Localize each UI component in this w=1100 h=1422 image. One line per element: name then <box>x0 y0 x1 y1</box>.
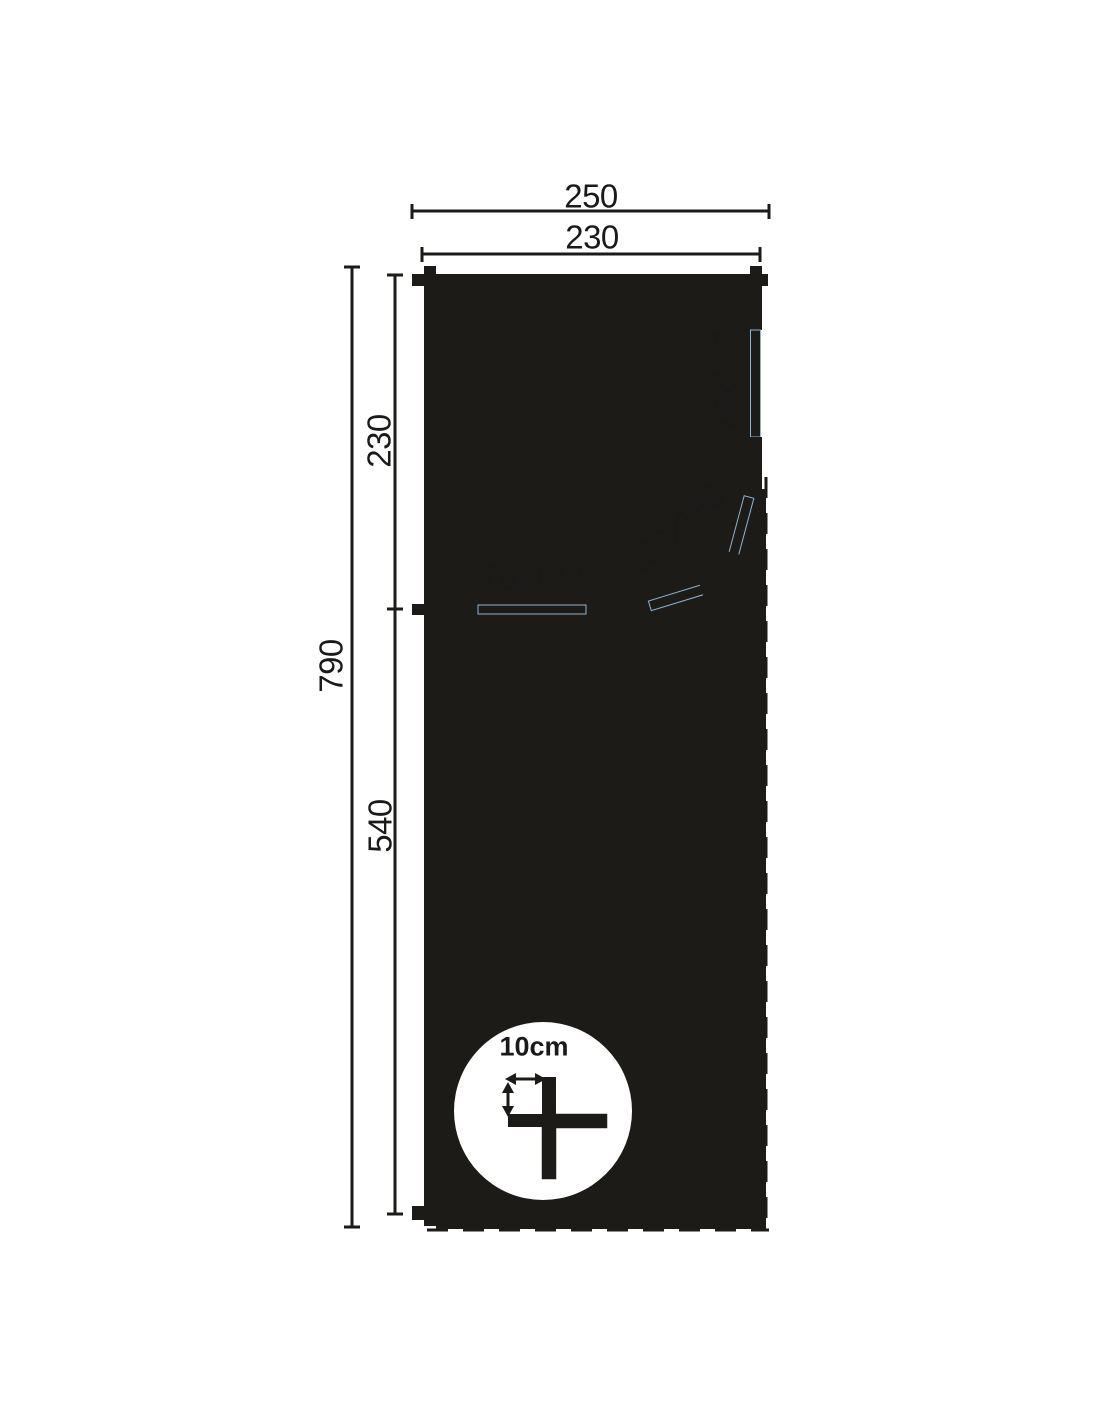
side-window-size-label: 76x122 <box>709 331 741 433</box>
right-wall-upper <box>750 266 762 330</box>
right-wall-lower <box>750 437 762 490</box>
terrace-post-middle <box>736 868 762 900</box>
front-window-size-label: 76x122 <box>481 562 583 594</box>
dim-label-overall-width: 250 <box>564 180 618 213</box>
left-wall <box>424 266 436 1226</box>
log-thickness-label: 10cm <box>499 1034 568 1061</box>
dim-label-cabin-depth: 230 <box>363 414 396 468</box>
back-wall <box>412 274 768 286</box>
front-wall-end-log <box>412 1206 461 1220</box>
log-horizontal-solid <box>508 1114 556 1127</box>
log-horizontal-outline <box>556 1115 606 1127</box>
dim-label-terrace-depth: 540 <box>364 799 397 853</box>
dim-line-overall-depth <box>344 267 360 1227</box>
side-window-glass <box>751 330 761 437</box>
front-window-glass <box>478 605 586 614</box>
log-vertical-outline <box>543 1127 555 1178</box>
floor-plan: 250 230 790 230 540 76x122 76x122 120x18… <box>0 0 1100 1422</box>
floor-plan-drawing <box>0 0 1100 1422</box>
dim-label-wall-width: 230 <box>565 221 619 254</box>
dim-label-overall-depth: 790 <box>315 639 348 693</box>
terrace-post-corner <box>735 1186 761 1218</box>
